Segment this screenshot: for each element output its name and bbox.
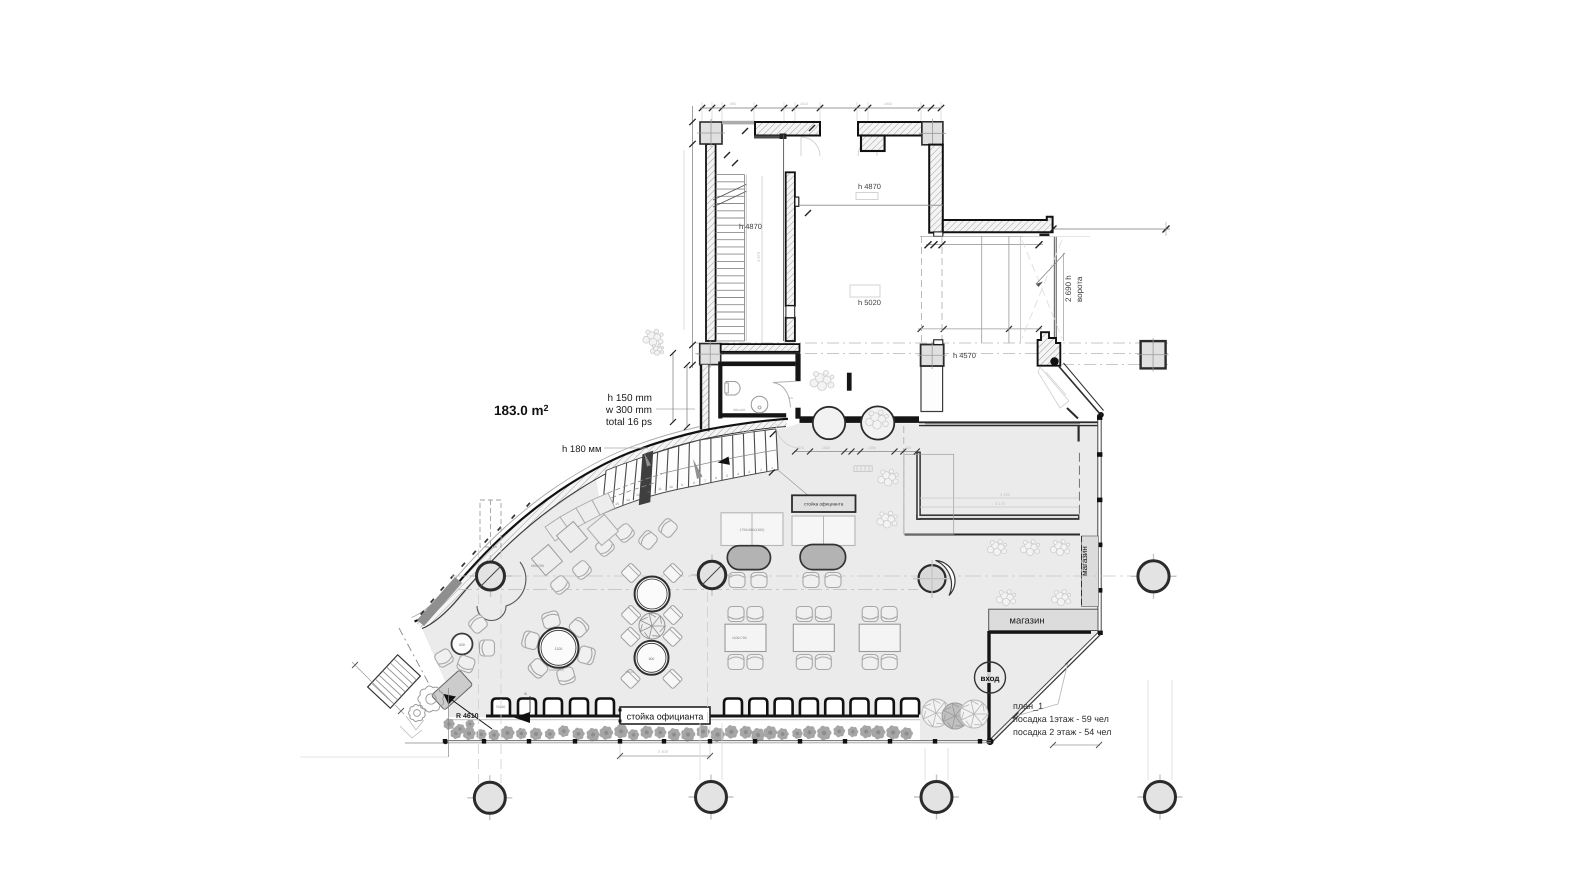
svg-text:2 400: 2 400: [658, 749, 669, 754]
svg-text:14: 14: [626, 498, 630, 502]
svg-text:5: 5: [726, 474, 728, 478]
svg-text:магазин: магазин: [1080, 546, 1089, 576]
svg-text:1890: 1890: [868, 446, 876, 450]
svg-text:посадка 2 этаж - 54 чел: посадка 2 этаж - 54 чел: [1013, 727, 1111, 737]
svg-text:2 690 h: 2 690 h: [1064, 275, 1073, 302]
svg-text:стойка официанта: стойка официанта: [627, 712, 704, 722]
svg-text:4 440: 4 440: [1000, 492, 1011, 497]
svg-text:890: 890: [730, 102, 736, 106]
svg-text:план_1: план_1: [1013, 701, 1043, 711]
svg-text:SI: SI: [524, 692, 527, 696]
svg-text:183.0 m2: 183.0 m2: [494, 403, 549, 418]
svg-text:6: 6: [715, 476, 717, 480]
svg-text:стойка официанта: стойка официанта: [804, 502, 844, 507]
svg-text:13: 13: [636, 493, 640, 497]
svg-text:h 4570: h 4570: [953, 351, 976, 360]
svg-text:1100: 1100: [555, 647, 563, 651]
svg-text:1900: 1900: [822, 446, 830, 450]
svg-text:h 180 мм: h 180 мм: [562, 444, 601, 455]
svg-text:680x780: 680x780: [531, 564, 544, 568]
svg-text:ворота: ворота: [1075, 276, 1084, 302]
svg-text:w 300 mm: w 300 mm: [605, 405, 652, 416]
svg-text:3: 3: [748, 470, 750, 474]
svg-text:посадка 1этаж - 59 чел: посадка 1этаж - 59 чел: [1013, 714, 1109, 724]
svg-text:15: 15: [615, 502, 619, 506]
svg-text:1010: 1010: [800, 102, 808, 106]
svg-text:600: 600: [459, 643, 465, 647]
svg-text:8: 8: [693, 481, 695, 485]
svg-text:(680x620): (680x620): [549, 668, 564, 672]
svg-text:360x3: 360x3: [625, 670, 634, 674]
svg-text:9: 9: [681, 483, 683, 487]
svg-text:total 16 ps: total 16 ps: [606, 417, 652, 428]
svg-text:1860: 1860: [884, 102, 892, 106]
svg-text:720: 720: [905, 446, 911, 450]
svg-text:10: 10: [669, 485, 673, 489]
svg-text:R 4610: R 4610: [456, 713, 479, 720]
svg-text:4 870: 4 870: [756, 251, 761, 262]
svg-text:340x410: 340x410: [733, 408, 745, 412]
svg-text:магазин: магазин: [1009, 616, 1044, 627]
svg-text:7: 7: [704, 479, 706, 483]
svg-text:вход: вход: [980, 674, 999, 683]
svg-text:1: 1: [771, 466, 773, 470]
svg-text:11: 11: [658, 487, 662, 491]
svg-text:h 5020: h 5020: [858, 298, 881, 307]
svg-text:h 4870: h 4870: [858, 182, 881, 191]
svg-text:2: 2: [760, 468, 762, 472]
svg-text:h 4870: h 4870: [739, 222, 762, 231]
svg-text:900: 900: [649, 657, 655, 661]
svg-text:4: 4: [737, 472, 739, 476]
svg-text:1100x700: 1100x700: [732, 636, 747, 640]
svg-text:1750x800(1360): 1750x800(1360): [740, 528, 765, 532]
svg-text:4 170: 4 170: [995, 501, 1006, 506]
svg-text:h 150 mm: h 150 mm: [608, 393, 652, 404]
svg-text:12: 12: [647, 490, 651, 494]
